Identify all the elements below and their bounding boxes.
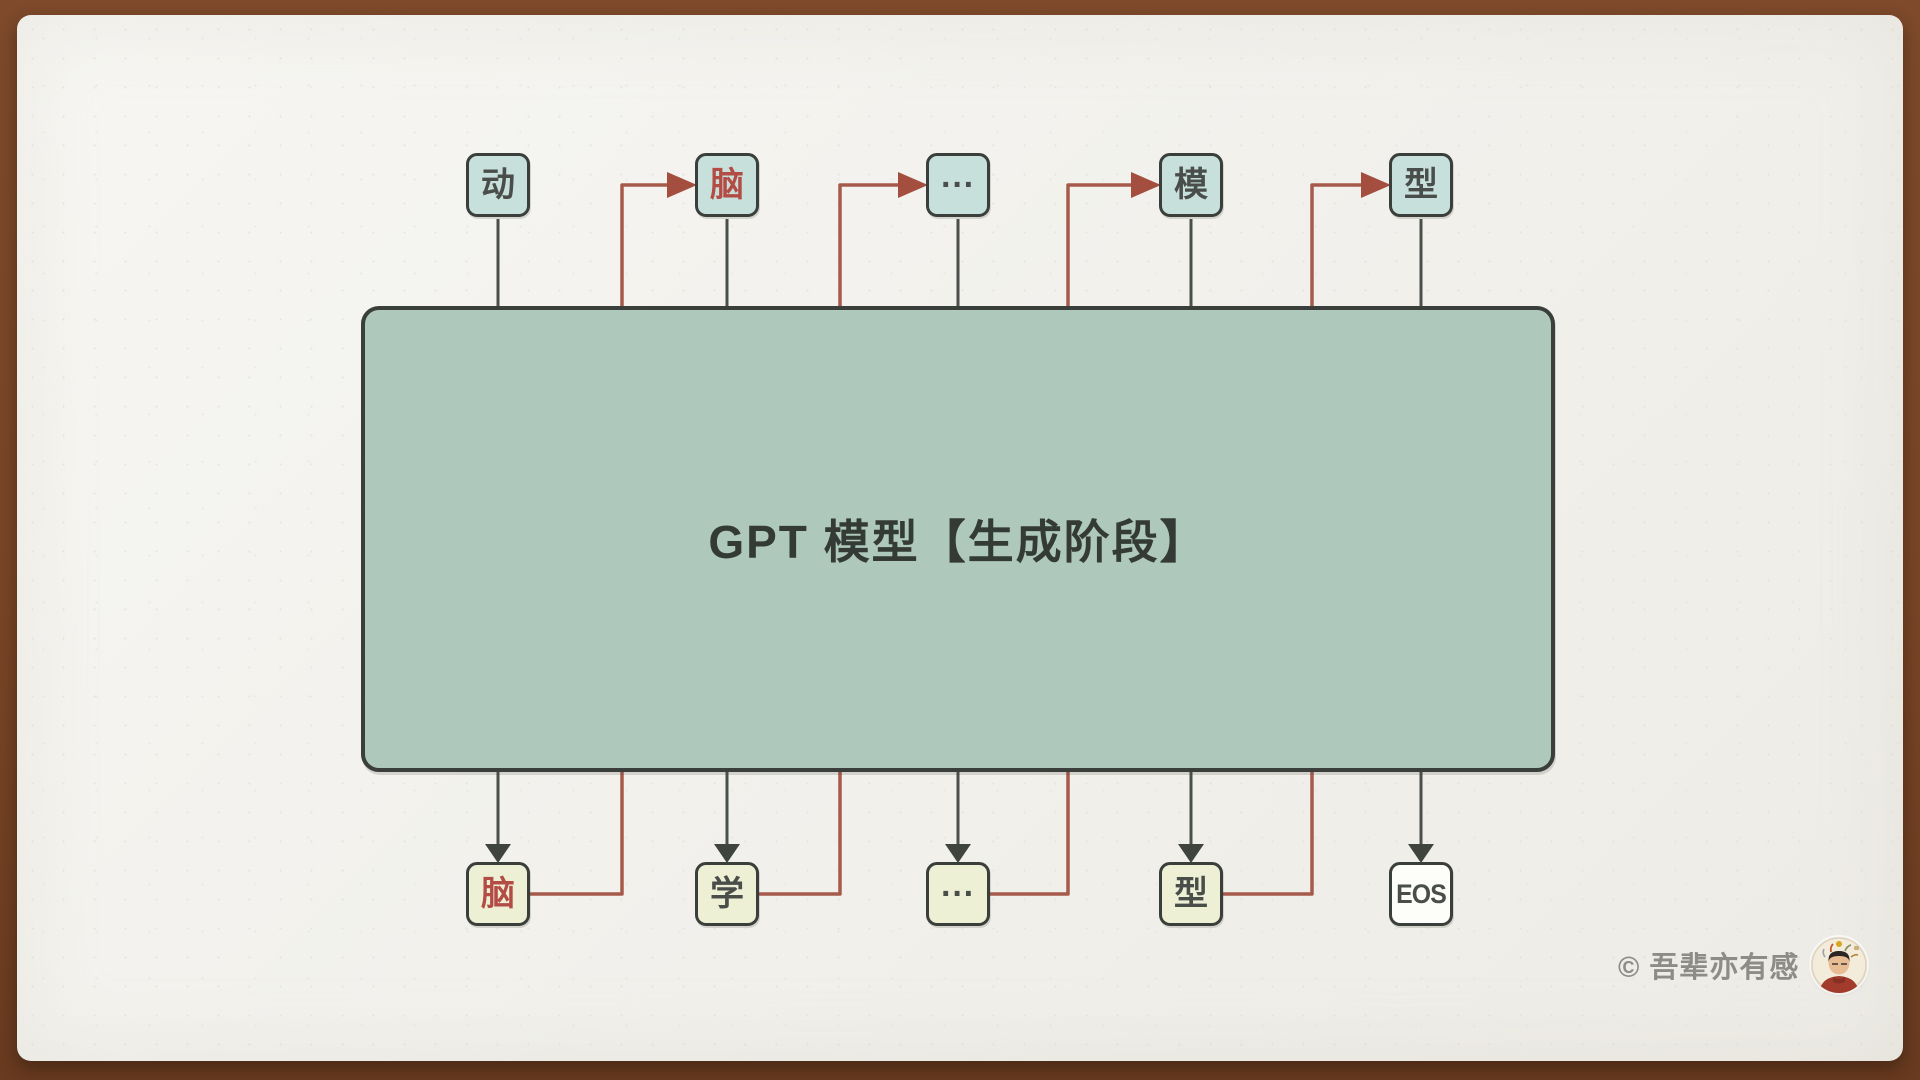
gpt-model-box: GPT 模型【生成阶段】 — [361, 306, 1555, 772]
token-label: 脑 — [481, 877, 515, 911]
token-label: 型 — [1174, 877, 1208, 911]
input-token-box: 脑 — [695, 153, 759, 217]
token-label: 脑 — [710, 168, 744, 202]
output-token-box: ··· — [926, 862, 990, 926]
input-token-box: 动 — [466, 153, 530, 217]
input-token-box: 模 — [1159, 153, 1223, 217]
token-label: 学 — [710, 877, 744, 911]
watermark-text: © 吾辈亦有感 — [1618, 944, 1799, 986]
canvas: { "title": "GPT 模型【生成阶段】", "top_row": { … — [0, 0, 1920, 1080]
input-token-box: ··· — [926, 153, 990, 217]
gpt-model-title: GPT 模型【生成阶段】 — [708, 506, 1207, 572]
token-label: 模 — [1174, 168, 1208, 202]
token-label: 型 — [1404, 168, 1438, 202]
token-label: EOS — [1396, 881, 1446, 908]
eos-token-box: EOS — [1389, 862, 1453, 926]
input-token-box: 型 — [1389, 153, 1453, 217]
output-token-box: 型 — [1159, 862, 1223, 926]
token-label: ··· — [941, 168, 975, 202]
watermark: © 吾辈亦有感 — [1618, 934, 1867, 996]
token-label: 动 — [481, 168, 515, 202]
author-avatar-icon — [1811, 937, 1867, 993]
output-token-box: 学 — [695, 862, 759, 926]
token-label: ··· — [941, 877, 975, 911]
output-token-box: 脑 — [466, 862, 530, 926]
